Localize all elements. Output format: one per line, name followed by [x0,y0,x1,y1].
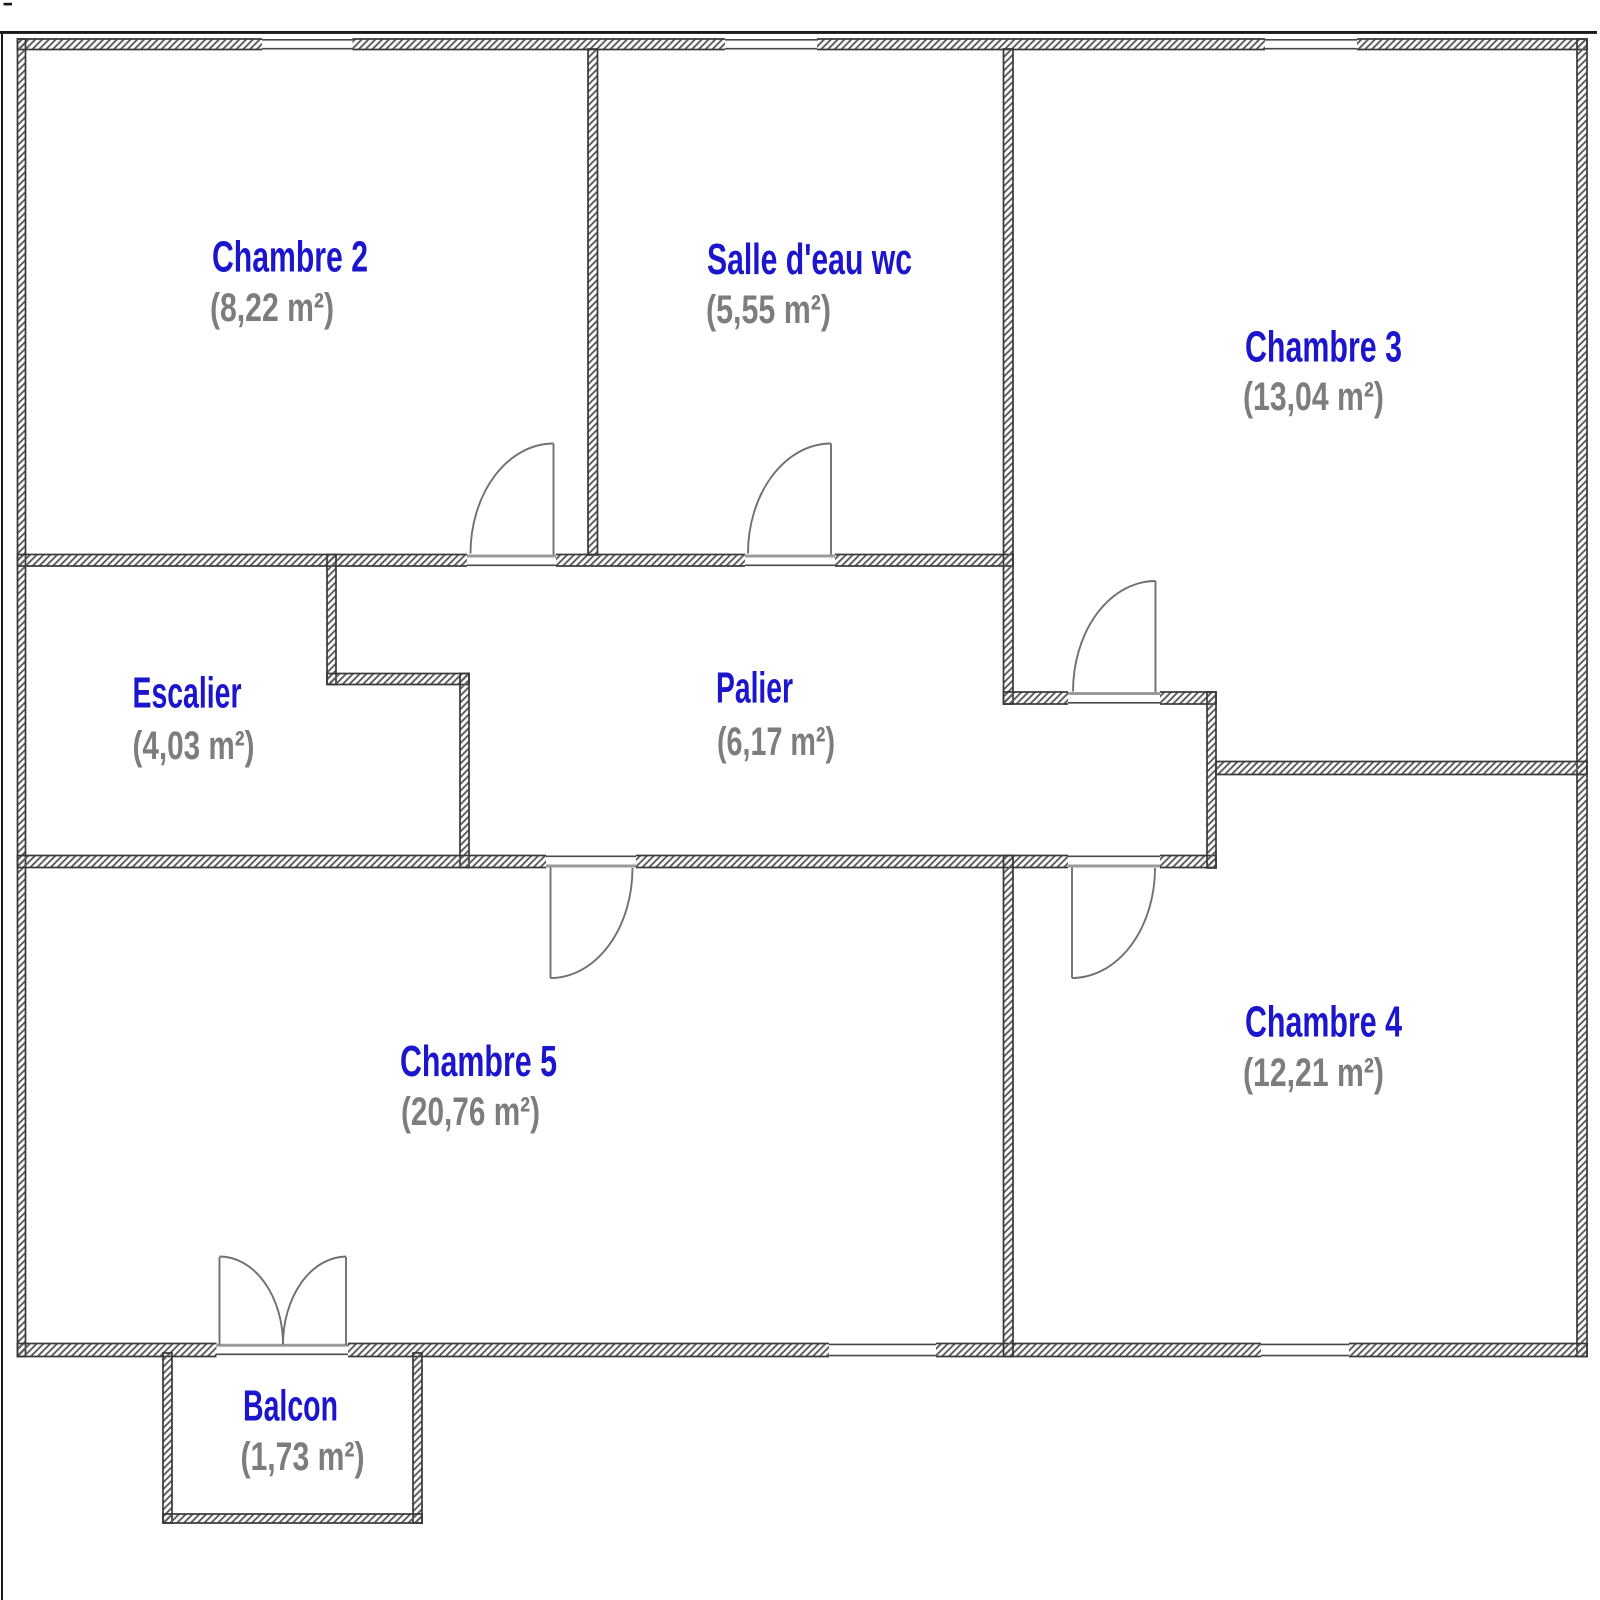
svg-text:(4,03 m²): (4,03 m²) [133,724,255,768]
svg-text:Chambre 5: Chambre 5 [400,1037,557,1086]
svg-text:(1,73 m²): (1,73 m²) [241,1435,365,1479]
svg-text:(20,76 m²): (20,76 m²) [401,1090,540,1134]
svg-text:(13,04 m²): (13,04 m²) [1243,375,1384,419]
svg-text:Chambre 2: Chambre 2 [212,233,368,282]
svg-text:Escalier: Escalier [133,669,242,718]
svg-text:Salle d'eau wc: Salle d'eau wc [707,235,912,284]
svg-text:(6,17 m²): (6,17 m²) [717,720,835,764]
svg-text:(12,21 m²): (12,21 m²) [1243,1051,1384,1095]
svg-text:Chambre 4: Chambre 4 [1245,998,1402,1047]
svg-text:Palier: Palier [716,664,793,713]
svg-text:Chambre 3: Chambre 3 [1245,323,1402,372]
svg-text:(5,55 m²): (5,55 m²) [706,288,831,332]
svg-text:(8,22 m²): (8,22 m²) [210,286,334,330]
svg-text:Balcon: Balcon [243,1382,338,1431]
